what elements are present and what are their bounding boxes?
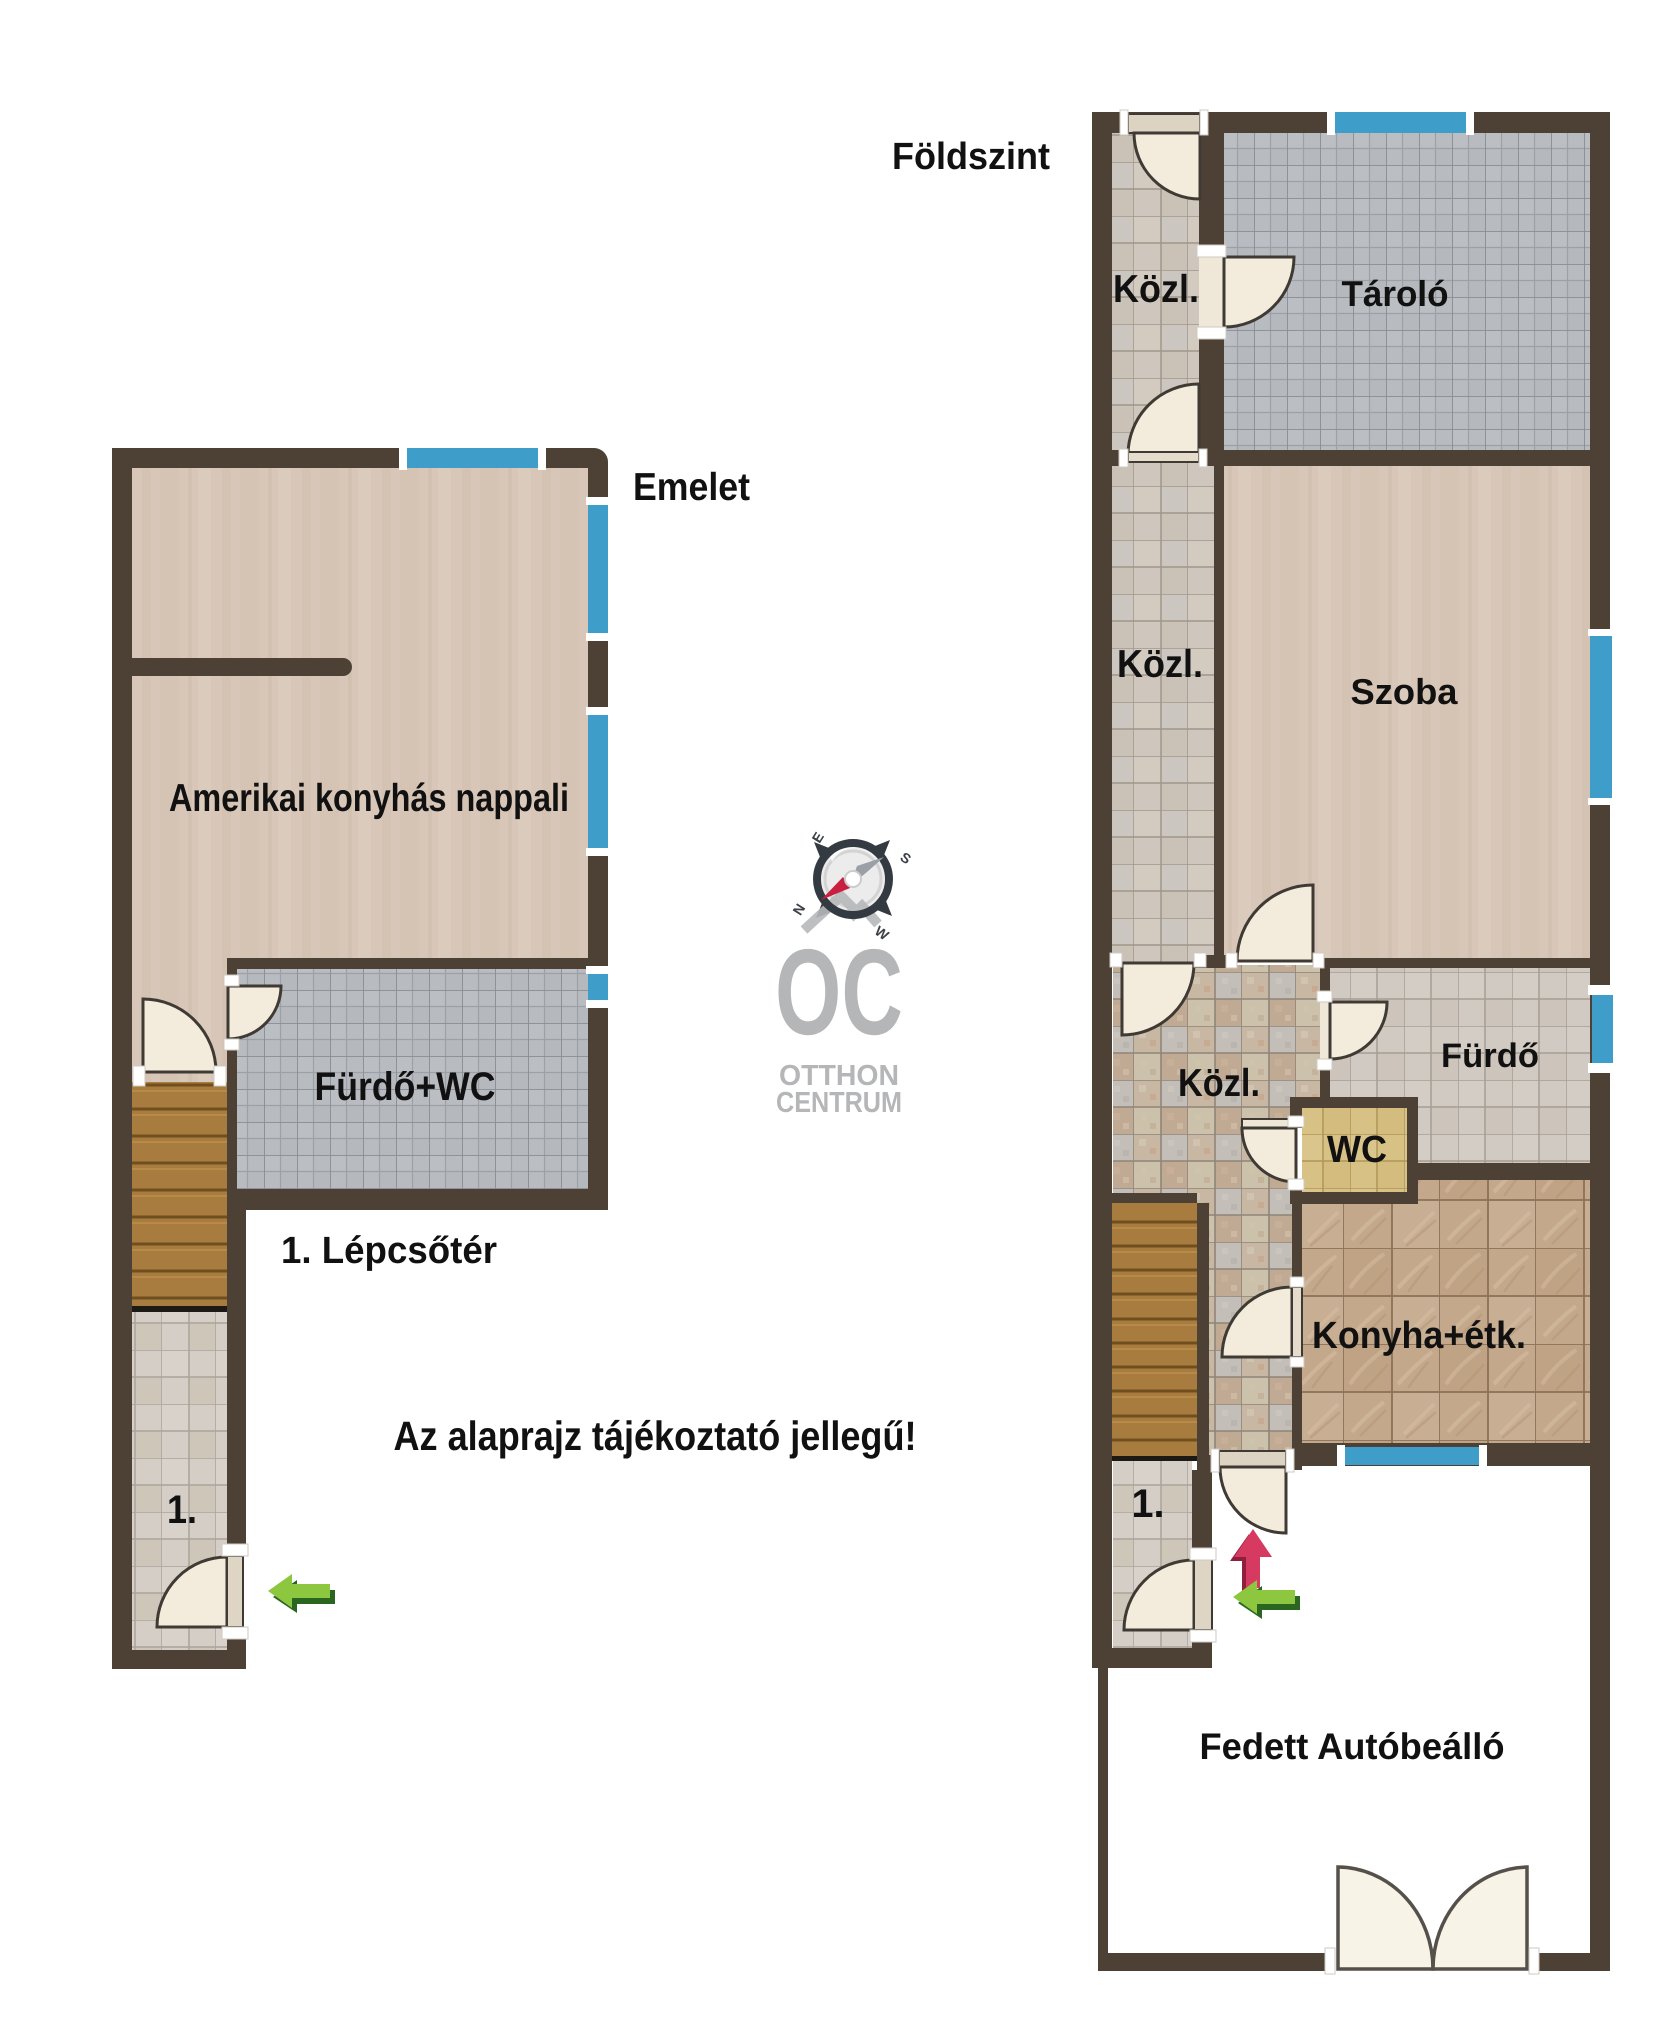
svg-text:Tároló: Tároló — [1342, 273, 1449, 314]
svg-text:Közl.: Közl. — [1113, 268, 1199, 311]
svg-text:Szoba: Szoba — [1351, 671, 1459, 712]
svg-text:OC: OC — [775, 924, 903, 1060]
svg-text:1. Lépcsőtér: 1. Lépcsőtér — [281, 1230, 497, 1272]
svg-text:Közl.: Közl. — [1178, 1062, 1260, 1105]
svg-text:WC: WC — [1327, 1129, 1387, 1171]
svg-text:Fedett Autóbeálló: Fedett Autóbeálló — [1200, 1726, 1505, 1767]
svg-text:Fürdő: Fürdő — [1441, 1037, 1539, 1075]
svg-text:Fürdő+WC: Fürdő+WC — [315, 1065, 496, 1109]
svg-text:Földszint: Földszint — [892, 136, 1050, 178]
svg-text:Konyha+étk.: Konyha+étk. — [1312, 1315, 1526, 1357]
svg-text:1.: 1. — [1132, 1482, 1165, 1526]
svg-text:1.: 1. — [167, 1488, 197, 1532]
svg-text:Közl.: Közl. — [1117, 643, 1203, 686]
svg-text:Emelet: Emelet — [633, 466, 750, 509]
svg-text:CENTRUM: CENTRUM — [776, 1087, 902, 1119]
svg-text:Az alaprajz tájékoztató jelleg: Az alaprajz tájékoztató jellegű! — [394, 1413, 917, 1459]
svg-text:Amerikai konyhás nappali: Amerikai konyhás nappali — [169, 777, 569, 820]
